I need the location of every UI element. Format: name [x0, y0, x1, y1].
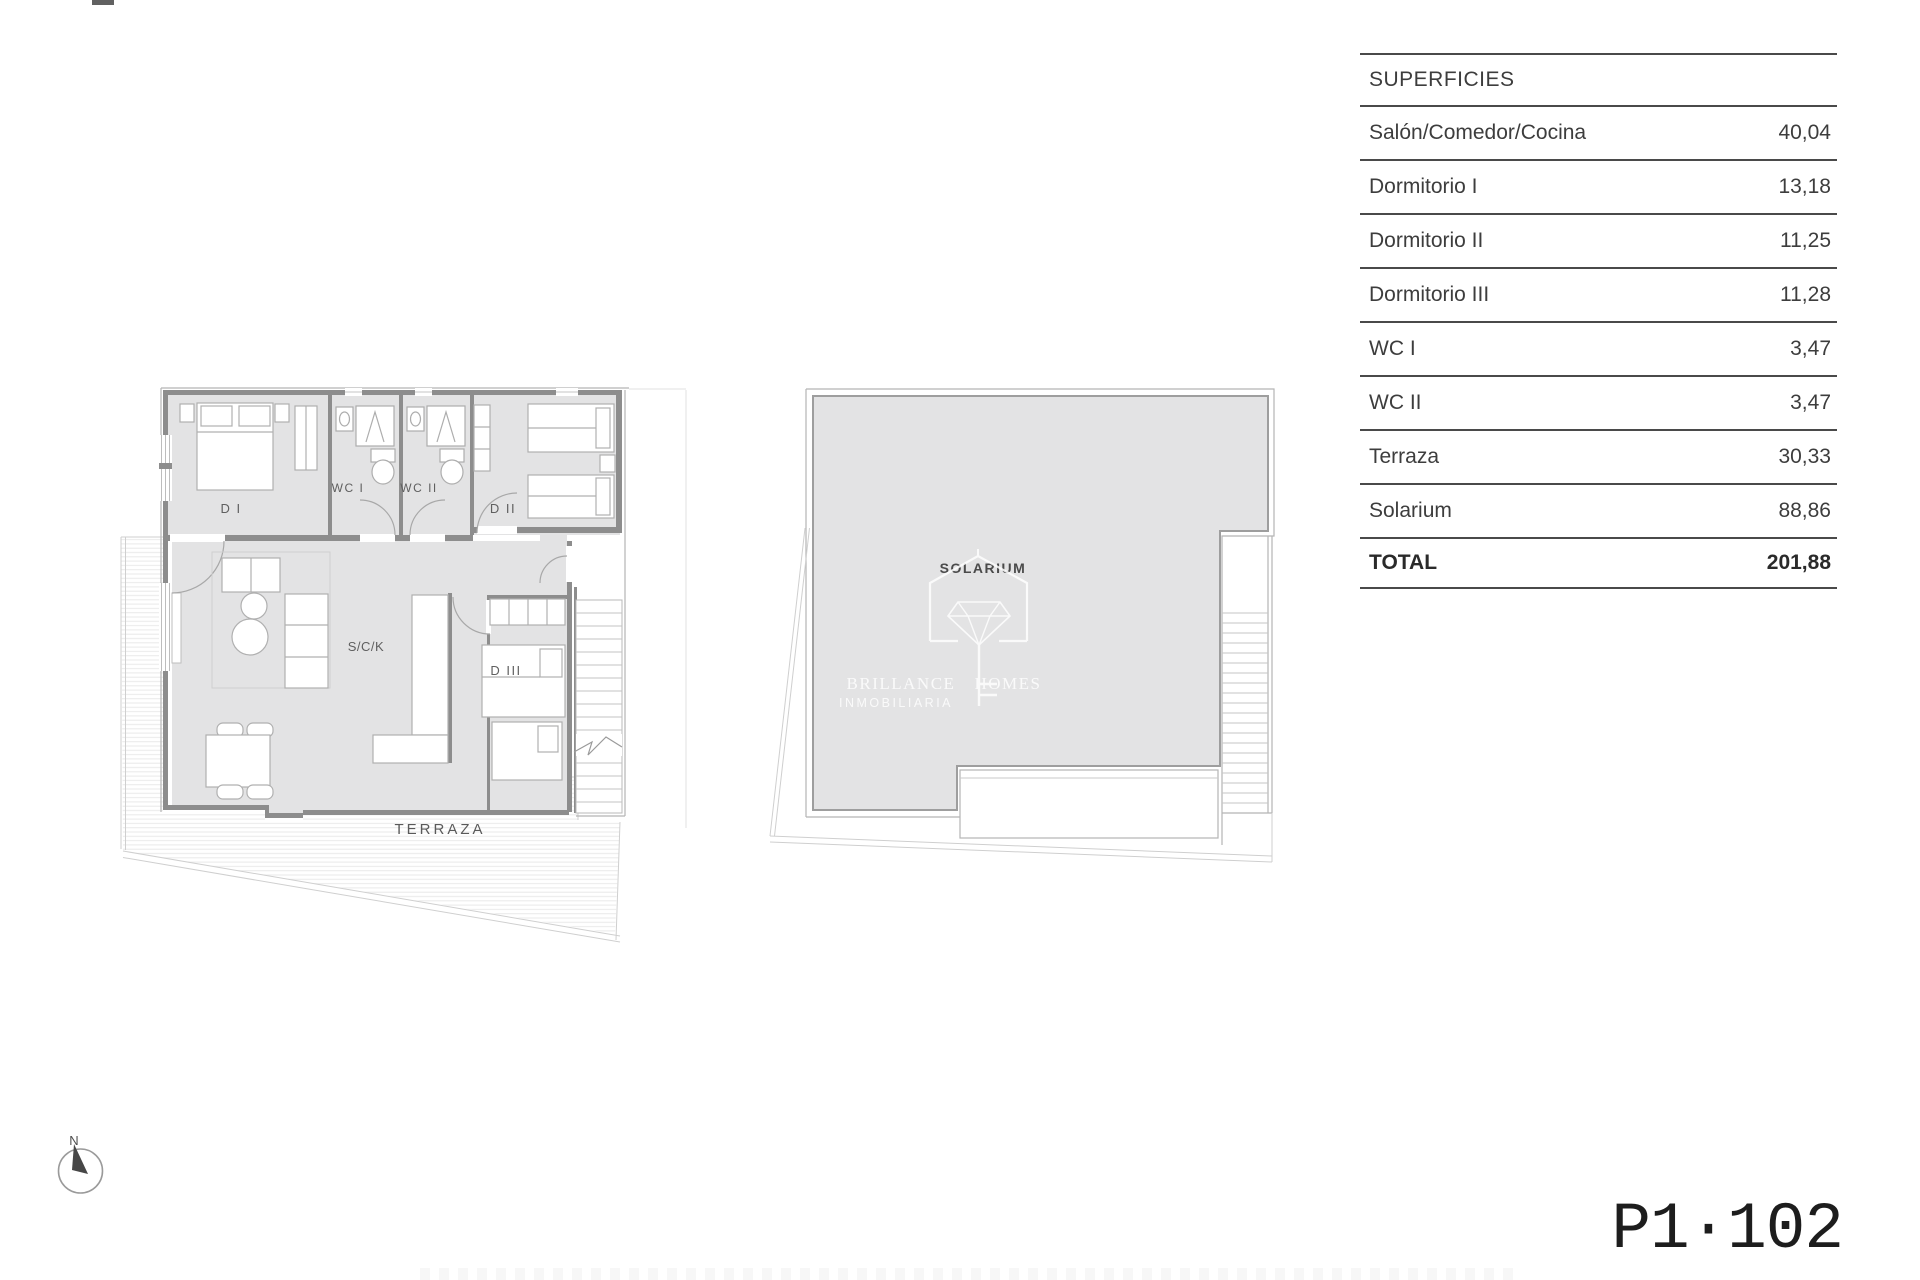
- row-value: 40,04: [1778, 121, 1831, 145]
- table-row: Dormitorio III 11,28: [1360, 269, 1837, 323]
- row-value: 11,25: [1780, 229, 1831, 253]
- surfaces-table-title-row: SUPERFICIES: [1360, 55, 1837, 107]
- solarium-floor-plan: SOLARIUM BRILLANCE HOMES INMOBILIARIA: [770, 389, 1274, 862]
- table-row: Dormitorio II 11,25: [1360, 215, 1837, 269]
- table-row: Terraza 30,33: [1360, 431, 1837, 485]
- row-label: Dormitorio II: [1369, 229, 1483, 253]
- surfaces-table: SUPERFICIES Salón/Comedor/Cocina 40,04 D…: [1360, 53, 1837, 589]
- row-label: Solarium: [1369, 499, 1452, 523]
- row-value: 30,33: [1778, 445, 1831, 469]
- row-label: Dormitorio III: [1369, 283, 1489, 307]
- room-label-sck: S/C/K: [348, 639, 384, 654]
- room-label-terraza: TERRAZA: [394, 821, 485, 838]
- solarium-floor-fill: [813, 396, 1268, 810]
- row-value: 13,18: [1778, 175, 1831, 199]
- room-label-d2: D II: [490, 501, 516, 516]
- room-label-wc1: WC I: [332, 481, 365, 495]
- north-compass-icon: N: [59, 1133, 103, 1193]
- row-value: 3,47: [1790, 391, 1831, 415]
- row-value: 3,47: [1790, 337, 1831, 361]
- plan-sheet: D I WC I WC II D II S/C/K D III TERRAZA: [0, 0, 1920, 1280]
- surfaces-table-title: SUPERFICIES: [1369, 68, 1515, 92]
- solarium-lower-terrace: [960, 770, 1218, 838]
- row-label: WC I: [1369, 337, 1416, 361]
- apartment-floor-plan: D I WC I WC II D II S/C/K D III TERRAZA: [121, 388, 686, 942]
- brand-word1: BRILLANCE: [847, 674, 956, 693]
- room-label-solarium: SOLARIUM: [940, 560, 1027, 576]
- staircase: [574, 600, 622, 813]
- table-row: Dormitorio I 13,18: [1360, 161, 1837, 215]
- row-label: Salón/Comedor/Cocina: [1369, 121, 1586, 145]
- row-label: Terraza: [1369, 445, 1439, 469]
- total-label: TOTAL: [1369, 551, 1437, 575]
- north-label: N: [69, 1133, 78, 1148]
- room-label-d1: D I: [220, 501, 241, 516]
- row-label: Dormitorio I: [1369, 175, 1478, 199]
- solarium-stairs: [1222, 613, 1268, 803]
- row-value: 88,86: [1778, 499, 1831, 523]
- neighbour-parcel-line: [629, 389, 686, 828]
- table-row: Salón/Comedor/Cocina 40,04: [1360, 107, 1837, 161]
- room-label-d3: D III: [490, 663, 521, 678]
- unit-code: P1·102: [1611, 1192, 1843, 1267]
- row-label: WC II: [1369, 391, 1422, 415]
- table-total-row: TOTAL 201,88: [1360, 539, 1837, 589]
- brand-subtitle: INMOBILIARIA: [839, 696, 953, 710]
- total-value: 201,88: [1767, 551, 1831, 575]
- room-label-wc2: WC II: [400, 481, 438, 495]
- table-row: Solarium 88,86: [1360, 485, 1837, 539]
- scan-noise-strip: [420, 1268, 1520, 1280]
- brand-word2: HOMES: [974, 674, 1041, 693]
- row-value: 11,28: [1780, 283, 1831, 307]
- table-row: WC I 3,47: [1360, 323, 1837, 377]
- table-row: WC II 3,47: [1360, 377, 1837, 431]
